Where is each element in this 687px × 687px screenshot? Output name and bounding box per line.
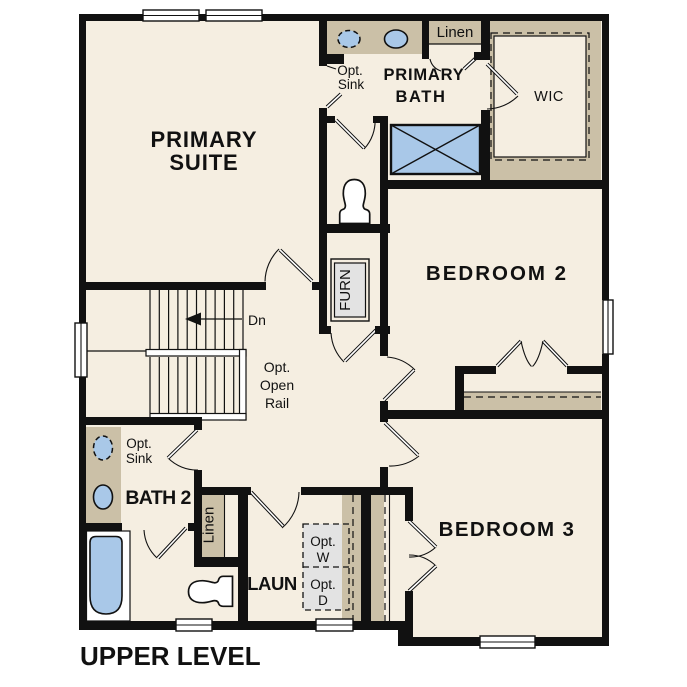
svg-text:Opt.: Opt. [126,436,152,451]
svg-text:BEDROOM 3: BEDROOM 3 [439,518,576,541]
svg-text:Opt.: Opt. [264,359,290,375]
svg-text:SUITE: SUITE [169,150,238,175]
svg-text:FURN: FURN [337,269,354,311]
svg-text:PRIMARY: PRIMARY [151,127,258,152]
svg-text:Opt.: Opt. [310,534,336,549]
svg-text:Linen: Linen [437,24,474,41]
svg-text:LAUN: LAUN [247,573,297,594]
svg-text:Opt.: Opt. [337,63,363,78]
svg-text:Sink: Sink [126,451,153,466]
svg-text:Sink: Sink [338,77,365,92]
svg-text:BATH: BATH [395,88,446,106]
svg-text:Dn: Dn [248,312,266,328]
svg-text:PRIMARY: PRIMARY [383,66,464,84]
svg-text:W: W [317,550,330,565]
svg-text:UPPER LEVEL: UPPER LEVEL [80,641,261,671]
svg-text:D: D [318,593,328,608]
svg-text:BATH 2: BATH 2 [125,487,191,509]
svg-text:BEDROOM 2: BEDROOM 2 [426,262,568,285]
svg-text:Linen: Linen [201,507,218,544]
svg-text:Open: Open [260,377,294,393]
svg-text:WIC: WIC [534,89,564,105]
svg-text:Rail: Rail [265,395,289,411]
svg-text:Opt.: Opt. [310,577,336,592]
